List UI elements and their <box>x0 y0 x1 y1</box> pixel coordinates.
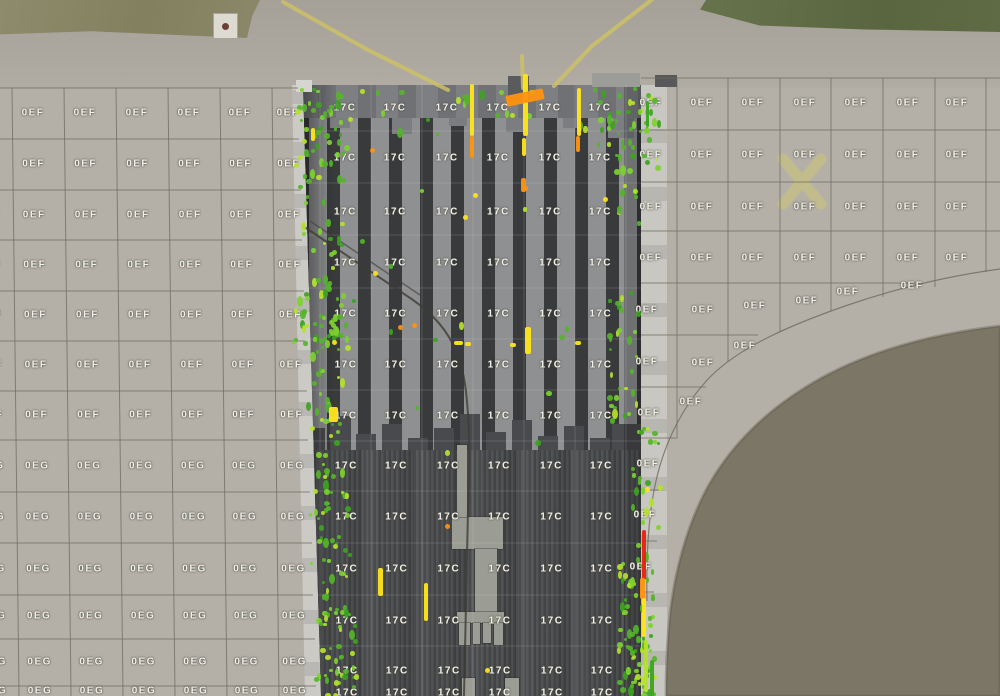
threshold-edge-block <box>592 73 640 87</box>
threshold-edge-block <box>508 76 529 102</box>
threshold-edge-block <box>655 75 677 87</box>
runway-edge-blocks <box>0 0 1000 696</box>
pavement-inspection-map[interactable]: 0EF0EF0EF0EF0EF0EF0EF0EF0EF0EF0EF0EF0EF0… <box>0 0 1000 696</box>
threshold-edge-block <box>296 80 312 92</box>
